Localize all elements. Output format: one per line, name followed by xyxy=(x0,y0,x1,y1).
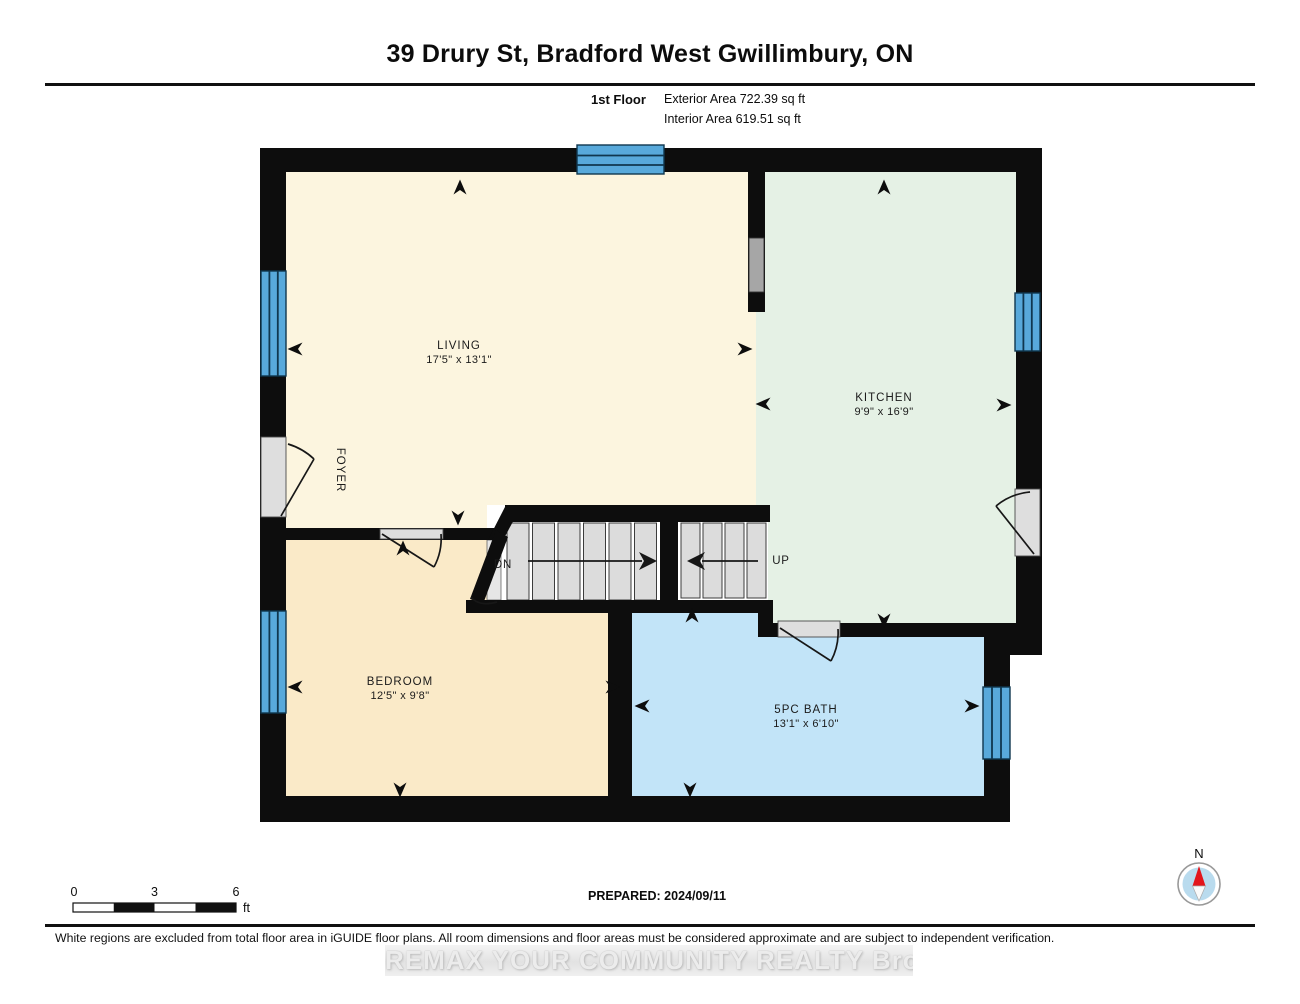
bath-dims: 13'1" x 6'10" xyxy=(773,718,839,730)
prepared-date: PREPARED: 2024/09/11 xyxy=(588,889,726,903)
living-room-floor xyxy=(286,172,758,528)
bath-door-sill xyxy=(778,621,840,637)
living-room-dims: 17'5" x 13'1" xyxy=(426,354,492,366)
scale-unit: ft xyxy=(243,901,250,915)
scale-bar: 0 3 6 ft xyxy=(71,885,251,915)
bedroom-dims: 12'5" x 9'8" xyxy=(370,690,429,702)
compass: N xyxy=(1178,846,1220,905)
entry-door-recess xyxy=(261,437,286,517)
window-living-left xyxy=(261,271,286,376)
scale-tick-6: 6 xyxy=(233,885,240,899)
foyer-label: FOYER xyxy=(334,448,346,493)
disclaimer-text: White regions are excluded from total fl… xyxy=(55,931,1054,945)
wall-pass-through xyxy=(749,238,764,292)
window-top xyxy=(577,145,664,174)
scale-tick-3: 3 xyxy=(151,885,158,899)
brokerage-watermark: REMAX YOUR COMMUNITY REALTY Brokerage xyxy=(385,945,913,976)
bedroom-door-sill xyxy=(380,529,443,539)
stairs-up-label: UP xyxy=(772,555,790,567)
footer-rule xyxy=(45,924,1255,927)
bath-label: 5PC BATH xyxy=(774,704,837,716)
compass-north-label: N xyxy=(1194,846,1203,861)
floor-plan: LIVING 17'5" x 13'1" KITCHEN 9'9" x 16'9… xyxy=(0,0,1300,1004)
window-bath-right xyxy=(983,687,1010,759)
stairs-down-label: DN xyxy=(494,559,512,571)
window-kitchen-right xyxy=(1015,293,1040,351)
scale-tick-0: 0 xyxy=(71,885,78,899)
living-room-label: LIVING xyxy=(437,340,481,352)
bedroom-label: BEDROOM xyxy=(367,676,433,688)
kitchen-dims: 9'9" x 16'9" xyxy=(854,406,913,418)
window-bedroom-left xyxy=(261,611,286,713)
kitchen-label: KITCHEN xyxy=(855,392,912,404)
